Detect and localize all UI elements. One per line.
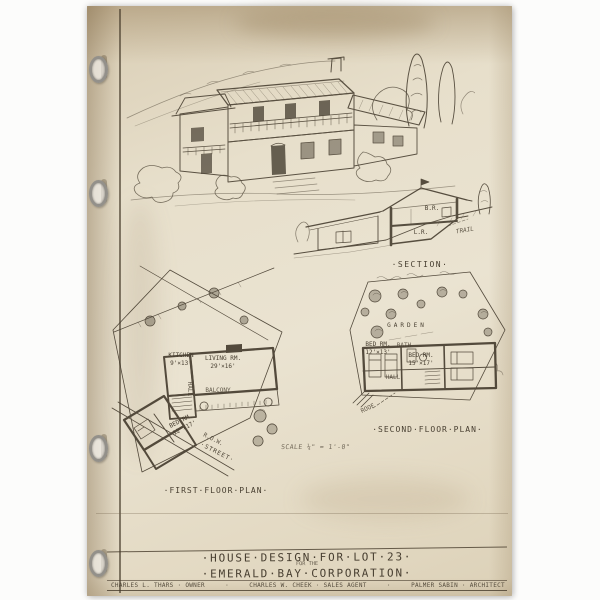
- credit-owner: CHARLES L. THARS · OWNER: [111, 582, 205, 589]
- scale-note: SCALE ¼" = 1'-0": [281, 443, 366, 451]
- credits-row: CHARLES L. THARS · OWNER · CHARLES W. CH…: [111, 582, 505, 590]
- section-livingroom-label: L.R.: [409, 229, 433, 237]
- room-label-bath: BATH: [392, 342, 416, 350]
- binder-page-photo: ·SECTION· ·SECOND·FLOOR·PLAN· ·FIRST·FLO…: [0, 0, 600, 600]
- credit-architect: PALMER SABIN · ARCHITECT: [411, 582, 505, 589]
- paper-stain: [235, 8, 435, 38]
- section-bedroom-label: B.R.: [420, 205, 444, 213]
- binder-ring-icon: [89, 56, 108, 83]
- garden-label: GARDEN: [378, 322, 436, 330]
- credits-rule-bottom: [107, 590, 507, 591]
- binder-ring-icon: [89, 550, 108, 577]
- room-label-balcony: BALCONY: [194, 387, 242, 395]
- section-drawing: [290, 172, 495, 264]
- room-label-bedroom2-second: BED RM. 15'×17': [400, 352, 442, 368]
- binder-ring-icon: [89, 435, 108, 462]
- first-floor-plan-label: ·FIRST·FLOOR·PLAN·: [136, 486, 296, 496]
- credit-sales-agent: CHARLES W. CHEEK · SALES AGENT: [249, 582, 366, 589]
- room-label-hall-second: HALL: [380, 374, 406, 382]
- section-label: ·SECTION·: [372, 260, 468, 270]
- sheet-title-line2: ·EMERALD·BAY·CORPORATION·: [107, 566, 507, 581]
- room-label-living: LIVING RM. 29'×16': [194, 355, 252, 371]
- credit-separator-dot: ·: [387, 582, 391, 589]
- room-label-hall-first: HALL: [185, 375, 193, 403]
- second-floor-plan-label: ·SECOND·FLOOR·PLAN·: [345, 425, 510, 435]
- binder-ring-icon: [89, 180, 108, 207]
- credit-separator-dot: ·: [225, 582, 229, 589]
- paper-crease-line: [96, 513, 508, 514]
